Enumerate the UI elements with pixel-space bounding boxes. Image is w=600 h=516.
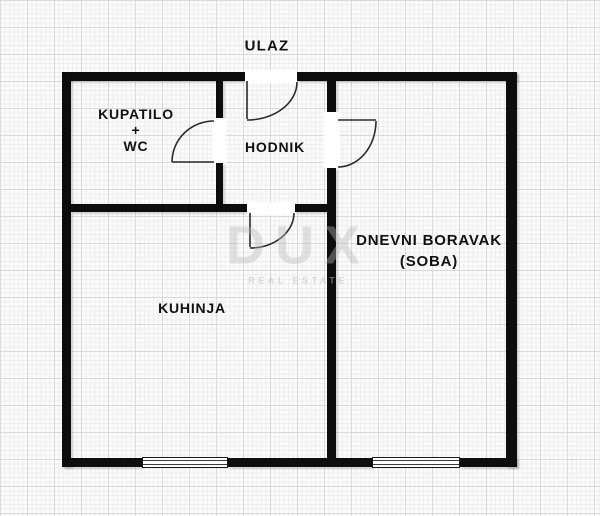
hallway-label: HODNIK — [245, 139, 305, 155]
door-swings-layer — [0, 0, 600, 516]
entrance-door-swing-icon — [247, 81, 297, 120]
kitchen-door-swing-icon — [250, 213, 294, 248]
bathroom-label-line2: + — [98, 122, 174, 138]
livingroom-label: DNEVNI BORAVAK (SOBA) — [356, 230, 502, 272]
bathroom-door-swing-icon — [172, 121, 214, 162]
entrance-label: ULAZ — [245, 36, 290, 57]
bathroom-label: KUPATILO + WC — [98, 106, 174, 154]
livingroom-door-swing-icon — [338, 120, 376, 167]
bathroom-label-line1: KUPATILO — [98, 106, 174, 122]
floor-plan-canvas: ULAZ KUPATILO + WC HODNIK DNEVNI BORAVAK… — [0, 0, 600, 516]
livingroom-label-line1: DNEVNI BORAVAK — [356, 230, 502, 251]
bathroom-label-line3: WC — [98, 138, 174, 154]
livingroom-label-line2: (SOBA) — [356, 251, 502, 272]
kitchen-label: KUHINJA — [158, 300, 226, 316]
